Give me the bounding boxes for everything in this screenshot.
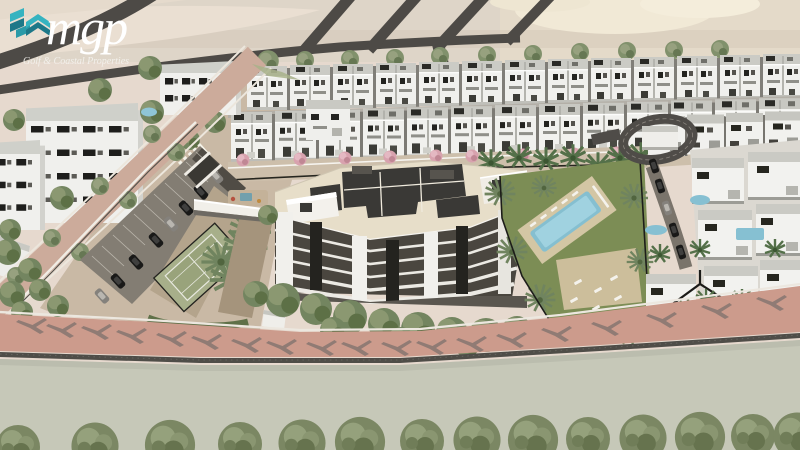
svg-text:Golf & Coastal Properties: Golf & Coastal Properties (23, 56, 129, 67)
svg-text:mgp: mgp (46, 0, 127, 55)
